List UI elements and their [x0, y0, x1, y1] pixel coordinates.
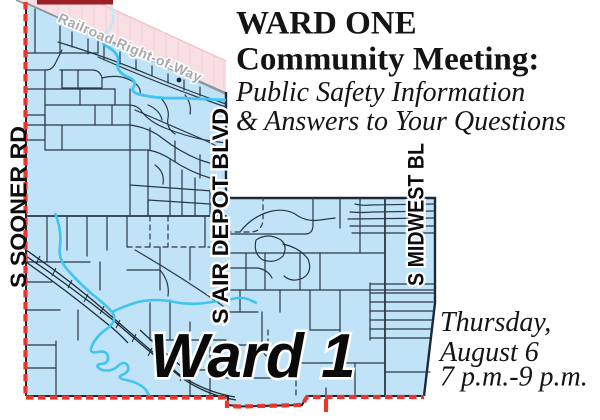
svg-text:Public Safety Information: Public Safety Information: [235, 77, 525, 108]
svg-text:S MIDWEST BL: S MIDWEST BL: [404, 143, 429, 286]
svg-text:Community Meeting:: Community Meeting:: [236, 42, 539, 78]
svg-text:7 p.m.-9 p.m.: 7 p.m.-9 p.m.: [440, 362, 588, 393]
svg-text:Ward 1: Ward 1: [150, 322, 356, 391]
svg-text:& Answers to Your Questions: & Answers to Your Questions: [236, 106, 566, 137]
svg-text:S SOONER RD: S SOONER RD: [6, 126, 31, 288]
svg-text:WARD ONE: WARD ONE: [236, 6, 417, 42]
svg-text:S AIR DEPOT BLVD: S AIR DEPOT BLVD: [208, 108, 233, 324]
svg-text:Thursday,: Thursday,: [440, 307, 551, 338]
